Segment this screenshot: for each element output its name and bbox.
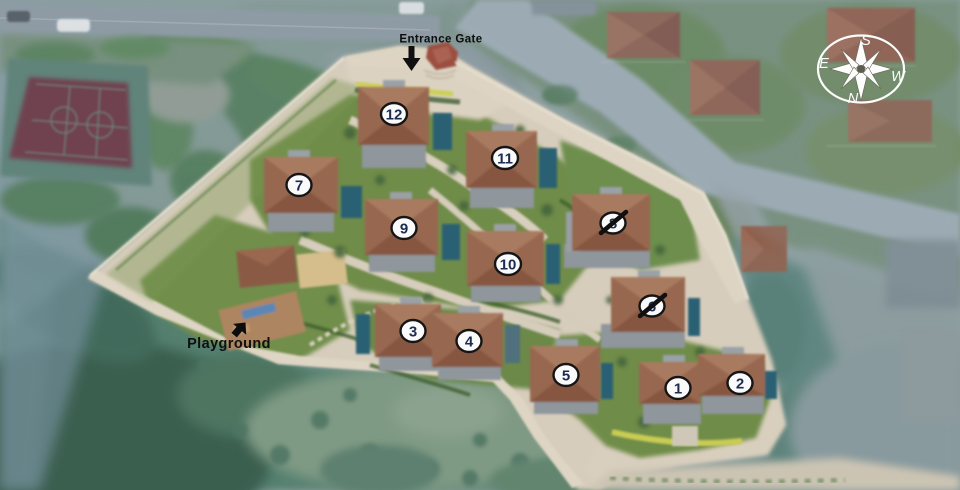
svg-text:7: 7 [295, 178, 303, 195]
svg-text:2: 2 [736, 376, 744, 393]
svg-text:9: 9 [400, 221, 408, 238]
svg-text:Entrance Gate: Entrance Gate [399, 34, 482, 46]
svg-text:1: 1 [674, 381, 682, 398]
svg-text:E: E [819, 56, 829, 72]
svg-text:5: 5 [562, 368, 570, 385]
svg-text:11: 11 [497, 151, 513, 168]
svg-text:4: 4 [465, 334, 474, 351]
svg-text:N: N [848, 91, 859, 107]
svg-text:W: W [891, 69, 906, 85]
svg-text:S: S [861, 33, 871, 49]
svg-text:Playground: Playground [187, 336, 271, 352]
svg-text:3: 3 [409, 324, 417, 341]
svg-text:10: 10 [500, 257, 517, 274]
svg-text:12: 12 [386, 107, 403, 124]
